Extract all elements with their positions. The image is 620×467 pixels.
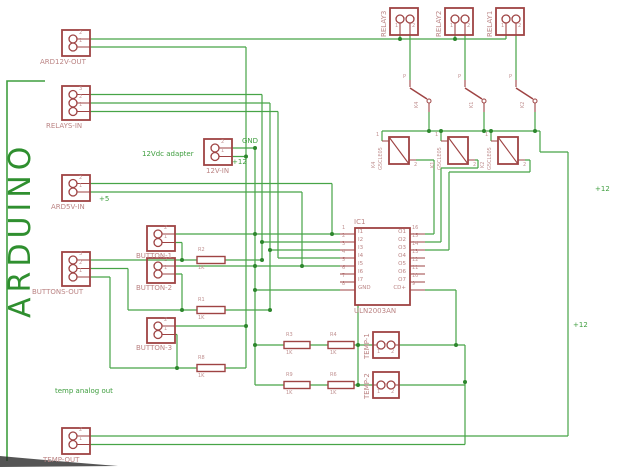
pin-number: 2 <box>164 318 167 323</box>
ic-pin-number: 16 <box>412 226 418 231</box>
ic-pin-number: 3 <box>342 242 345 247</box>
coil-pin-number: 1 <box>435 133 438 138</box>
pin-number: 2 <box>79 176 82 181</box>
resistor-r9-name: R9 <box>286 373 293 378</box>
resistor-r6 <box>328 382 354 389</box>
connector-button2-label: BUTTON-2 <box>136 285 172 292</box>
resistor-r3-name: R3 <box>286 333 293 338</box>
junction-dots <box>175 37 537 387</box>
connector-12v-in-box <box>204 139 232 165</box>
pin-number: 3 <box>79 252 82 257</box>
resistor-r9-value: 1K <box>286 391 292 396</box>
connector-ard5v-in-box <box>62 175 90 201</box>
pin-number: 2 <box>79 428 82 433</box>
resistor-r6-value: 1K <box>330 391 336 396</box>
pin-number: 1 <box>79 103 82 108</box>
relay-k1-coil-value: G5CLE05 <box>438 147 443 170</box>
ic-pin-number: 11 <box>412 266 418 271</box>
relay-k1-switch-name: K1 <box>470 102 475 108</box>
connector-relay1-label: RELAY1 <box>487 11 494 37</box>
pin-number: 1 <box>164 266 167 271</box>
pin-number: 2 <box>467 24 470 29</box>
ic-pin-label: I1 <box>358 230 363 236</box>
pin-number: 2 <box>164 226 167 231</box>
coil-pin-number: 2 <box>523 163 526 168</box>
pin-number: 2 <box>79 261 82 266</box>
relay-k2-coil-name: K2 <box>481 162 486 168</box>
connector-ard12v-out-label: ARD12V-OUT <box>40 59 86 66</box>
relay-k2-pole-label: P <box>509 75 512 80</box>
resistor-r1-value: 1K <box>198 316 204 321</box>
ic-pin-label: GND <box>358 286 371 292</box>
connector-relay2-label: RELAY2 <box>436 11 443 37</box>
ic-pin-label: O6 <box>383 270 406 276</box>
ic-pin-number: 8 <box>342 282 345 287</box>
ic-pin-label: I3 <box>358 246 363 252</box>
ic-pin-number: 14 <box>412 242 418 247</box>
ic-pin-label: O1 <box>383 230 406 236</box>
ic-pin-number: 9 <box>412 282 415 287</box>
coil-pin-number: 2 <box>473 163 476 168</box>
ic-pin-label: O4 <box>383 254 406 260</box>
resistor-r2 <box>197 257 225 264</box>
resistor-r4-name: R4 <box>330 333 337 338</box>
connector-buttons-out-label: BUTTONS-OUT <box>32 289 83 296</box>
relay-k4-coil-name: K4 <box>372 162 377 168</box>
relay-k4-switch-name: K4 <box>415 102 420 108</box>
relay-switch-blades <box>410 88 533 99</box>
relay-k1-pole-label: P <box>458 75 461 80</box>
ic-part: ULN2003AN <box>354 308 396 315</box>
resistor-r1-name: R1 <box>198 298 205 303</box>
connector-temp1-label: TEMP-1 <box>364 333 371 359</box>
pin-number: 1 <box>501 24 504 29</box>
resistor-r3 <box>284 342 310 349</box>
resistor-r4-value: 1K <box>330 351 336 356</box>
ic-pin-label: O3 <box>383 246 406 252</box>
resistor-r8 <box>197 365 225 372</box>
pin-number: 1 <box>164 235 167 240</box>
ic-pin-number: 10 <box>412 274 418 279</box>
connector-relay3-label: RELAY3 <box>381 11 388 37</box>
pin-number: 1 <box>221 149 224 154</box>
ic-pin-label: O7 <box>383 278 406 284</box>
resistor-r6-name: R6 <box>330 373 337 378</box>
plus12-right-top-net-label: +12 <box>595 186 610 193</box>
resistor-r1 <box>197 307 225 314</box>
ic-name: IC1 <box>354 219 365 226</box>
pin-number: 2 <box>79 31 82 36</box>
pin-number: 1 <box>79 184 82 189</box>
ic-pin-number: 7 <box>342 274 345 279</box>
pin-number: 3 <box>79 87 82 92</box>
connector-button3-label: BUTTON-3 <box>136 345 172 352</box>
ic-pin-label: I5 <box>358 262 363 268</box>
relay-k2-coil-value: G5CLE05 <box>488 147 493 170</box>
plus12-adapter-net-label: +12 <box>232 159 247 166</box>
connector-button1-box <box>147 226 175 251</box>
pin-number: 2 <box>518 24 521 29</box>
connector-temp-out-label: TEMP-OUT <box>43 457 79 464</box>
ic-pin-label: I7 <box>358 278 363 284</box>
resistor-r9 <box>284 382 310 389</box>
connector-relays-in-label: RELAYS-IN <box>46 123 82 130</box>
ic-pin-label: O5 <box>383 262 406 268</box>
pin-number: 1 <box>377 390 380 395</box>
temp-analog-note: temp analog out <box>55 388 113 395</box>
coil-pin-number: 1 <box>485 133 488 138</box>
coil-pin-number: 2 <box>414 163 417 168</box>
gnd-net-label: GND <box>242 138 258 145</box>
relay-k1-coil-name: K1 <box>431 162 436 168</box>
schematic-canvas: ARDUINO 12Vdc adapter temp analog out GN… <box>0 0 620 467</box>
pin-number: 1 <box>79 437 82 442</box>
schematic-graphics <box>0 0 620 467</box>
relay-k4-pole-label: P <box>403 75 406 80</box>
resistor-r8-name: R8 <box>198 356 205 361</box>
pin-number: 1 <box>79 269 82 274</box>
connector-temp2-label: TEMP-2 <box>364 373 371 399</box>
resistor-r3-value: 1K <box>286 351 292 356</box>
ic-pin-number: 1 <box>342 226 345 231</box>
resistor-r8-value: 1K <box>198 374 204 379</box>
ic-pin-number: 2 <box>342 234 345 239</box>
pin-number: 2 <box>412 24 415 29</box>
adapter-note: 12Vdc adapter <box>142 151 194 158</box>
connector-button3-box <box>147 318 175 343</box>
pin-number: 2 <box>221 140 224 145</box>
ic-pin-label: O2 <box>383 238 406 244</box>
relay-k2-switch-name: K2 <box>521 102 526 108</box>
ic-pin-label: I6 <box>358 270 363 276</box>
coil-pin-number: 1 <box>376 133 379 138</box>
pin-number: 1 <box>395 24 398 29</box>
pin-number: 1 <box>377 350 380 355</box>
plus5-net-label: +5 <box>99 196 109 203</box>
ic-pin-label: CD+ <box>383 286 406 292</box>
resistor-bodies <box>197 257 354 389</box>
connector-12v-in-label: 12V-IN <box>206 168 229 175</box>
pin-number: 2 <box>164 258 167 263</box>
pin-number: 2 <box>391 350 394 355</box>
ic-pin-label: I4 <box>358 254 363 260</box>
ic-pin-number: 6 <box>342 266 345 271</box>
connector-ard12v-out-box <box>62 30 90 56</box>
ic-pin-number: 5 <box>342 258 345 263</box>
plus12-right-bottom-net-label: +12 <box>573 322 588 329</box>
resistor-r2-value: 1K <box>198 266 204 271</box>
ic-pin-number: 12 <box>412 258 418 263</box>
pin-number: 1 <box>450 24 453 29</box>
pin-number: 1 <box>164 327 167 332</box>
resistor-r2-name: R2 <box>198 248 205 253</box>
resistor-r4 <box>328 342 354 349</box>
ic-pin-number: 15 <box>412 234 418 239</box>
pin-number: 1 <box>79 39 82 44</box>
ic-pin-label: I2 <box>358 238 363 244</box>
ic-pin-number: 13 <box>412 250 418 255</box>
ic-pin-number: 4 <box>342 250 345 255</box>
relay-k4-coil-value: G5CLE05 <box>379 147 384 170</box>
pin-number: 2 <box>79 95 82 100</box>
connector-ard5v-in-label: ARD5V-IN <box>51 204 85 211</box>
pin-number: 2 <box>391 390 394 395</box>
